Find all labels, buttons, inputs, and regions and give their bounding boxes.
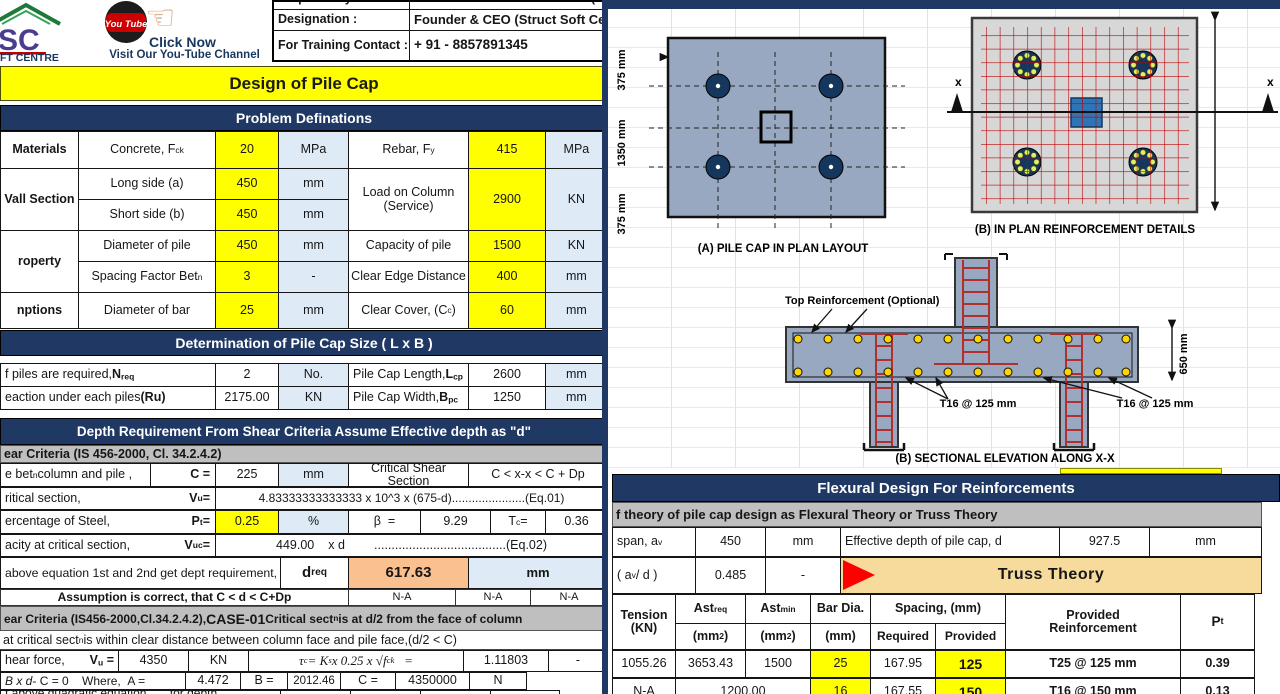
col-header-unit: (mm2) [676,624,746,650]
axis-label: x [1267,75,1274,89]
pointing-hand-icon: ☜ [145,0,175,38]
t16-label-right: T16 @ 125 mm [1117,398,1194,410]
shear-row-vu2: hear force,Vu = 4350 KN τc = Ks x 0.25 x… [0,650,608,672]
youtube-block: You Tube ☜ Click Now Visit Our You-Tube … [97,0,272,62]
label: x d [328,539,345,552]
value-cell: 4350000 [396,673,470,690]
unit-cell: KN [546,169,608,231]
row-label: Pile Cap Width, Bpc [349,387,469,410]
input-cell[interactable]: 1500 [469,231,546,262]
bar-dia-input[interactable]: 16 [811,679,871,694]
label: Critical Shear Section [349,464,469,487]
shear-criteria-1: ear Criteria (IS 456-2000, Cl. 34.2.4.2) [0,445,608,463]
input-cell[interactable]: 450 [216,231,279,262]
col-header-provided-reinf: ProvidedReinforcement [1006,595,1181,650]
value-cell: 225 [216,464,279,487]
youtube-icon[interactable]: You Tube [103,0,149,46]
top-reinf-label: Top Reinforcement (Optional) [785,295,940,307]
dim-label: 375 mm [616,193,628,234]
row-label: ritical section, [1,488,151,510]
unit-cell: mm [469,558,608,589]
value-cell: 927.5 [1060,528,1150,557]
unit-cell: mm [279,169,349,200]
value-cell: 1250 [469,387,546,410]
unit-cell: MPa [279,132,349,169]
rebar-mesh [981,27,1189,204]
symbol: Vuc = [151,535,216,557]
label: C < x-x < C + Dp [469,464,608,487]
unit-cell: KN [189,651,249,672]
pt-value: 0.39 [1181,651,1255,678]
col-header-bardia: Bar Dia. [811,595,871,624]
contact-label: Prepared By: [274,2,410,10]
unit-cell: mm [279,200,349,231]
row-label: hear force,Vu = [1,651,119,672]
section-shear: Depth Requirement From Shear Criteria As… [0,418,608,445]
input-cell[interactable]: 450 [216,200,279,231]
diagram-sectional-elevation: Top Reinforcement (Optional) T16 @ 125 m… [770,246,1280,470]
shear-row-vuc: acity at critical section, Vuc = 449.00 … [0,534,608,557]
value-cell: 1.11803 [464,651,549,672]
unit-cell: mm [546,262,608,293]
tension-value: 1055.26 [613,651,676,678]
group-label: nptions [1,293,79,329]
section-flag [951,93,963,112]
row-label: B x d - C = 0 Where, A = [1,673,186,690]
formula: 4.83333333333333 x 10^3 x (675-d).......… [216,488,608,510]
dim-label: 375 mm [616,49,628,90]
unit-cell: mm [766,528,841,557]
flexural-data-row: N-A 1200.00 16 167.55 150 T16 @ 150 mm 0… [612,678,1255,694]
flexural-table-header: Tension(KN) Astreq Astmin Bar Dia. Spaci… [612,594,1255,650]
shear-row-dreq: above equation 1st and 2nd get dept requ… [0,557,608,589]
input-cell[interactable]: 415 [469,132,546,169]
tension-value: N-A [613,679,676,694]
click-now-label[interactable]: Click Now [149,34,216,50]
col-header-astmin: Astmin [746,595,811,624]
section-flexural: Flexural Design For Reinforcements [612,474,1280,502]
pile-left [870,382,898,447]
symbol: C = [341,673,396,690]
problem-table: Materials Concrete, Fck 20 MPa Rebar, Fy… [0,131,608,329]
value-cell: 450 [696,528,766,557]
param-label: Diameter of pile [79,231,216,262]
unit-cell: mm [279,464,349,487]
dim-label: 1350 mm [616,119,628,166]
value-cell: 2 [216,364,279,387]
unit-cell: mm [546,387,608,410]
flexural-section: Flexural Design For Reinforcements f the… [612,468,1280,694]
determination-table: f piles are required, Nreq 2 No. Pile Ca… [0,363,608,410]
row-label: Pile Cap Length, Lcp [349,364,469,387]
eq-ref: ......................................(E… [374,539,607,552]
input-cell[interactable]: 450 [216,169,279,200]
shear-row-c: e betn column and pile , C = 225 mm Crit… [0,463,608,487]
symbol: C = [151,464,216,487]
spacing-provided-input[interactable]: 150 [936,679,1006,694]
input-cell[interactable]: 20 [216,132,279,169]
param-label: Long side (a) [79,169,216,200]
row-label: acity at critical section, [1,535,151,557]
symbol: Pt = [151,511,216,534]
spacing-required: 167.95 [871,651,936,678]
param-label: Capacity of pile [349,231,469,262]
col-header-provided: Provided [936,624,1006,650]
result-cell: 617.63 [349,558,469,589]
unit-cell: No. [279,364,349,387]
shear-row-vu: ritical section, Vu = 4.83333333333333 x… [0,487,608,510]
left-panel: SC FT CENTRE You Tube ☜ Click Now Visit … [0,0,608,694]
section-determination: Determination of Pile Cap Size ( L x B ) [0,330,608,356]
diagram-pile-cap-plan: 375 mm 1350 mm 375 mm 375 mm 1350 mm 375… [613,8,948,258]
company-logo: SC FT CENTRE [0,0,97,62]
value-cell: N-A [349,590,456,606]
shear-row-roots: f above quadratic equation sectn for dep… [0,690,560,694]
theory-result-cell: Truss Theory [841,558,1262,594]
contact-value: + 91 - 8857891345 [410,31,606,60]
bar-dia-input[interactable]: 25 [811,651,871,678]
value-cell: 2175.00 [216,387,279,410]
contact-value: Mr. ZIYAURRAHMAN ANSARI (M-Te [410,2,606,10]
col-header-astreq: Astreq [676,595,746,624]
value-cell: 4350 [119,651,189,672]
shear-row-quad: B x d - C = 0 Where, A = 4.472 B = 2012.… [0,672,527,690]
diagram-reinforcement-plan: x x (B) IN PLAN REINFORCEMENT DETAILS [945,8,1280,241]
col-header-unit: (mm) [811,624,871,650]
flexural-data-row: 1055.26 3653.43 1500 25 167.95 125 T25 @… [612,650,1255,678]
elevation-caption: (B) SECTIONAL ELEVATION ALONG X-X [895,453,1115,465]
red-flag-icon [843,560,875,590]
contact-value: Founder & CEO (Struct Soft Cen [410,10,606,31]
col-header-unit: (mm2) [746,624,811,650]
svg-text:You Tube: You Tube [105,19,148,30]
symbol: dreq [281,558,349,589]
unit-cell: mm [546,293,608,329]
contact-table: Prepared By: Mr. ZIYAURRAHMAN ANSARI (M-… [272,0,608,62]
col-header-spacing: Spacing, (mm) [871,595,1006,624]
value-cell: 2012.46 [288,673,341,690]
shear-row-pt: ercentage of Steel, Pt = 0.25 % β = 9.29… [0,510,608,534]
input-cell[interactable]: 60 [469,293,546,329]
row-label: ( av/ d ) [613,558,696,594]
flexural-row1: span, av 450 mm Effective depth of pile … [612,527,1262,557]
input-cell[interactable]: 25 [216,293,279,329]
value-cell: N-A [456,590,531,606]
value-cell: - [549,651,608,672]
shear-row-assume: Assumption is correct, that C < d < C+Dp… [0,589,608,606]
row-label: f piles are required, Nreq [1,364,216,387]
sheet-title: Design of Pile Cap [0,66,608,101]
pt-value: 0.13 [1181,679,1255,694]
row-label: eaction under each piles (Ru) [1,387,216,410]
param-label: Diameter of bar [79,293,216,329]
row-label: above equation 1st and 2nd get dept requ… [1,558,281,589]
input-cell[interactable]: 3 [216,262,279,293]
t16-label-left: T16 @ 125 mm [940,398,1017,410]
param-label: Clear Cover, (Cc) [349,293,469,329]
section-problem-definitions: Problem Definations [0,105,608,131]
group-label: Materials [1,132,79,169]
input-cell[interactable]: 0.25 [216,511,279,534]
provided-reinforcement: T16 @ 150 mm [1006,679,1181,694]
channel-label[interactable]: Visit Our You-Tube Channel [97,49,272,61]
unit-cell: N [470,673,527,690]
unit-cell: mm [279,231,349,262]
value-cell: 4.472 [186,673,241,690]
col-header-required: Required [871,624,936,650]
row-label: ercentage of Steel, [1,511,151,534]
group-label: roperty [1,231,79,293]
symbol: β = [349,511,421,534]
param-label: Load on Column (Service) [349,169,469,231]
param-label: Spacing Factor Betn [79,262,216,293]
param-label: Concrete, Fck [79,132,216,169]
symbol: Tc = [491,511,546,534]
row-label: span, av [613,528,696,557]
unit-cell: - [766,558,841,594]
unit-cell: KN [279,387,349,410]
symbol: Vu = [151,488,216,510]
unit-cell: mm [546,364,608,387]
value: 449.00 [276,539,314,552]
symbol: B = [241,673,288,690]
row-label: Assumption is correct, that C < d < C+Dp [1,590,349,606]
contact-label: For Training Contact : [274,31,410,60]
shear-note: at critical sectn is within clear distan… [0,631,608,650]
param-label: Short side (b) [79,200,216,231]
logo-caption: FT CENTRE [0,52,59,62]
depth-dim-label: 650 mm [1178,333,1190,374]
pile-right [1060,382,1088,447]
col-header-pt: Pt [1181,595,1255,650]
reinf-caption: (B) IN PLAN REINFORCEMENT DETAILS [975,224,1196,236]
pile-cap-design-sheet: SC FT CENTRE You Tube ☜ Click Now Visit … [0,0,1280,694]
unit-cell: % [279,511,349,534]
flexural-criteria: f theory of pile cap design as Flexural … [612,502,1262,527]
input-cell[interactable]: 400 [469,262,546,293]
value-cell: 0.485 [696,558,766,594]
ast-merged-value: 1200.00 [676,679,811,694]
unit-cell: - [279,262,349,293]
section-flag [1262,93,1274,112]
group-label: Vall Section [1,169,79,231]
spacing-provided-input[interactable]: 125 [936,651,1006,678]
value-cell: N-A [531,590,608,606]
unit-cell: KN [546,231,608,262]
formula: 449.00 x d .............................… [216,535,608,557]
shear-criteria-2: ear Criteria (IS456-2000,Cl.34.2.4.2), C… [0,606,608,631]
unit-cell: MPa [546,132,608,169]
contact-label: Designation : [274,10,410,31]
astmin-value: 1500 [746,651,811,678]
flexural-row2: ( av/ d ) 0.485 - Truss Theory [612,557,1262,594]
formula: τc = Ks x 0.25 x √fck = [249,651,464,672]
col-header-tension: Tension(KN) [613,595,676,650]
param-label: Rebar, Fy [349,132,469,169]
unit-cell: mm [279,293,349,329]
axis-label: x [955,75,962,89]
provided-reinforcement: T25 @ 125 mm [1006,651,1181,678]
value-cell: 0.36 [546,511,608,534]
spacing-required: 167.55 [871,679,936,694]
astreq-value: 3653.43 [676,651,746,678]
unit-cell: mm [1150,528,1262,557]
theory-result: Truss Theory [998,567,1104,584]
input-cell[interactable]: 2900 [469,169,546,231]
row-label: Effective depth of pile cap, d [841,528,1060,557]
value-cell: 2600 [469,364,546,387]
row-label: e betn column and pile , [1,464,151,487]
value-cell: 9.29 [421,511,491,534]
param-label: Clear Edge Distance [349,262,469,293]
